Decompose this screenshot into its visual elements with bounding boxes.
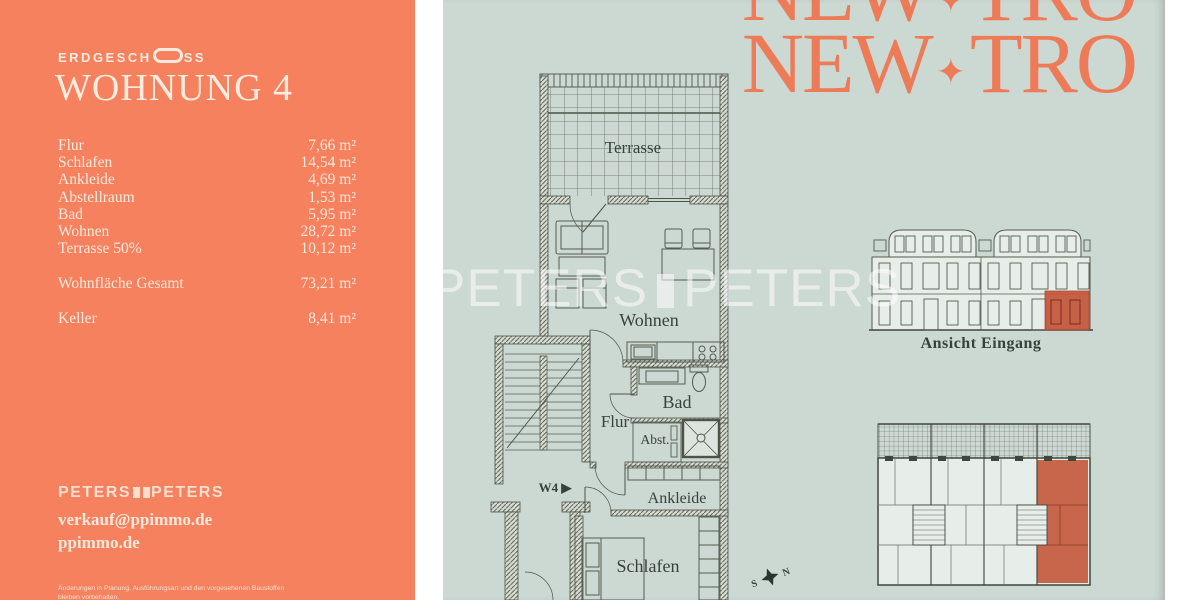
- room-row: Abstellraum 1,53 m²: [58, 189, 356, 206]
- unit-tag: W4 ▶: [539, 480, 573, 495]
- room-row: Ankleide 4,69 m²: [58, 171, 356, 188]
- brand-word: PETERS: [151, 484, 224, 501]
- room-row: Flur 7,66 m²: [58, 137, 356, 154]
- floor-label: ERDGESCHSS: [58, 48, 206, 65]
- room-label-schlafen: Schlafen: [617, 556, 680, 576]
- brand-square-icon: [133, 487, 140, 498]
- info-panel: ERDGESCHSS WOHNUNG 4 Flur 7,66 m² Schlaf…: [0, 0, 415, 600]
- peters-logo: PETERSPETERS: [58, 484, 224, 502]
- room-label-abst: Abst.: [641, 432, 670, 447]
- room-label: Terrasse 50%: [58, 240, 142, 257]
- room-row: Terrasse 50% 10,12 m²: [58, 240, 356, 257]
- total-row: Wohnfläche Gesamt 73,21 m²: [58, 275, 356, 292]
- watermark-word: PETERS: [443, 259, 648, 318]
- page-title: WOHNUNG 4: [55, 66, 293, 110]
- total-label: Wohnfläche Gesamt: [58, 275, 184, 292]
- room-row: Schlafen 14,54 m²: [58, 154, 356, 171]
- room-value: 4,69 m²: [308, 171, 356, 188]
- contact-email: verkauf@ppimmo.de: [58, 508, 212, 531]
- room-label-terrasse: Terrasse: [605, 138, 661, 157]
- room-label: Abstellraum: [58, 189, 135, 206]
- plan-panel: NEW✦TRO NEW✦TRO: [443, 0, 1165, 600]
- elevation-caption: Ansicht Eingang: [921, 335, 1042, 352]
- siteplan-drawing: [878, 424, 1090, 585]
- compass: S N: [748, 561, 793, 592]
- stylized-o-icon: [153, 48, 183, 63]
- total-value: 73,21 m²: [301, 275, 356, 292]
- contact-website: ppimmo.de: [58, 531, 212, 554]
- keller-row: Keller 8,41 m²: [58, 310, 356, 327]
- floor-label-pre: ERDGESCH: [58, 50, 152, 65]
- room-value: 5,95 m²: [308, 206, 356, 223]
- room-label: Schlafen: [58, 154, 112, 171]
- room-value: 14,54 m²: [301, 154, 356, 171]
- compass-star-icon: [758, 565, 781, 588]
- compass-south: S: [750, 578, 759, 590]
- watermark-word: PETERS: [683, 259, 901, 318]
- room-value: 10,12 m²: [301, 240, 356, 257]
- brand-square-icon: [143, 487, 150, 498]
- room-label: Flur: [58, 137, 84, 154]
- floor-label-post: SS: [184, 50, 206, 65]
- room-label: Ankleide: [58, 171, 115, 188]
- apartment-floorplan: Terrasse Wohnen Bad Flur Abst. Ankleide …: [491, 74, 728, 600]
- elevation-drawing: Ansicht Eingang: [869, 230, 1093, 352]
- compass-north: N: [781, 566, 792, 579]
- room-label: Bad: [58, 206, 83, 223]
- room-value: 7,66 m²: [308, 137, 356, 154]
- keller-value: 8,41 m²: [308, 310, 356, 327]
- room-label-ankleide: Ankleide: [648, 490, 707, 507]
- room-label: Wohnen: [58, 223, 109, 240]
- disclaimer-line: bleiben vorbehalten.: [58, 594, 403, 600]
- brand-word: PETERS: [58, 484, 131, 501]
- room-row: Wohnen 28,72 m²: [58, 223, 356, 240]
- contact-block: verkauf@ppimmo.de ppimmo.de: [58, 508, 212, 554]
- room-list: Flur 7,66 m² Schlafen 14,54 m² Ankleide …: [58, 137, 356, 327]
- watermark: PETERSPETERS: [443, 258, 901, 319]
- room-label-flur: Flur: [601, 412, 630, 431]
- disclaimer-line: Änderungen in Planung, Ausführungsart un…: [58, 585, 403, 594]
- keller-label: Keller: [58, 310, 97, 327]
- room-value: 28,72 m²: [301, 223, 356, 240]
- watermark-square-icon: [657, 274, 674, 308]
- room-label-bad: Bad: [663, 392, 692, 412]
- room-value: 1,53 m²: [308, 189, 356, 206]
- room-row: Bad 5,95 m²: [58, 206, 356, 223]
- disclaimer: Änderungen in Planung, Ausführungsart un…: [58, 585, 403, 600]
